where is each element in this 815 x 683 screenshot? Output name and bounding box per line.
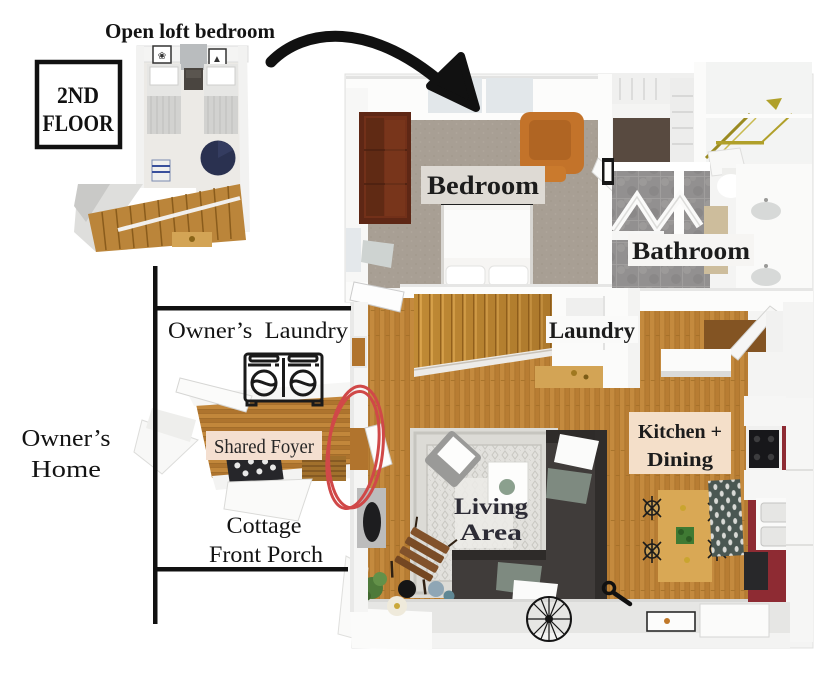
svg-text:Open loft bedroom: Open loft bedroom (105, 19, 276, 43)
svg-text:Living: Living (454, 494, 529, 519)
svg-text:Dining: Dining (647, 449, 713, 471)
svg-text:Front Porch: Front Porch (209, 542, 324, 567)
svg-text:Owner’s: Owner’s (22, 426, 111, 452)
svg-text:FLOOR: FLOOR (43, 111, 114, 136)
svg-text:Shared Foyer: Shared Foyer (214, 436, 314, 458)
svg-text:Owner’s Laundry: Owner’s Laundry (168, 318, 349, 343)
svg-text:Bathroom: Bathroom (632, 238, 750, 265)
svg-text:Laundry: Laundry (549, 318, 635, 343)
svg-text:Bedroom: Bedroom (427, 171, 539, 200)
svg-text:❀: ❀ (158, 51, 166, 62)
svg-text:▲: ▲ (212, 54, 222, 65)
svg-text:Cottage: Cottage (227, 513, 302, 538)
svg-text:2ND: 2ND (57, 83, 99, 108)
svg-text:Kitchen +: Kitchen + (638, 421, 722, 443)
svg-text:Area: Area (460, 520, 523, 545)
svg-text:Home: Home (31, 457, 101, 483)
